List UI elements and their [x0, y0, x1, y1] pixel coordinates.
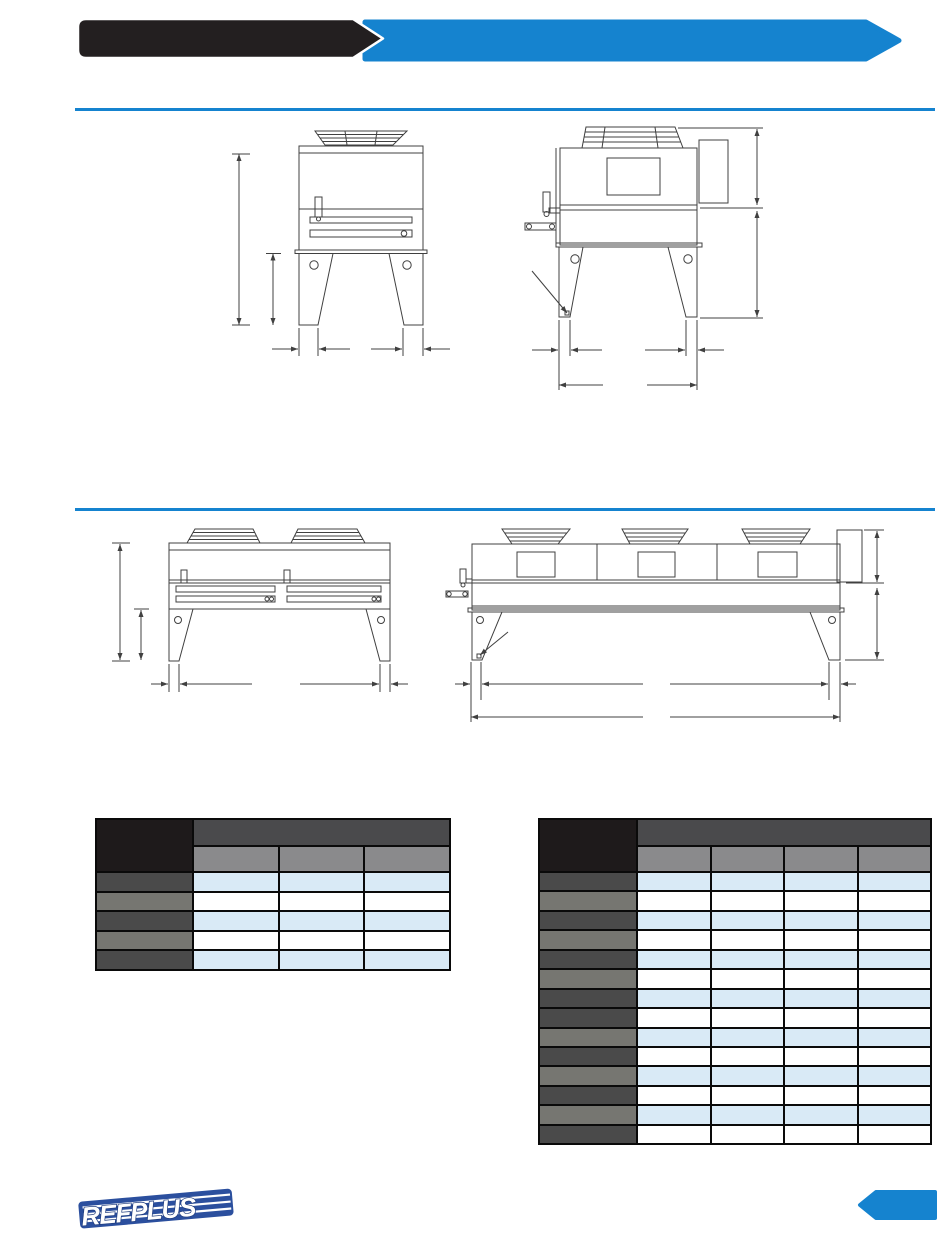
unit-body: [169, 543, 390, 609]
section-rule-middle: [75, 508, 935, 511]
table-corner-header: [539, 819, 637, 872]
data-cell: [364, 872, 450, 892]
header-black-banner: [78, 19, 383, 58]
table-row: [96, 950, 450, 970]
row-header-cell: [539, 1105, 637, 1124]
data-cell: [279, 931, 365, 951]
table-row: [539, 1008, 931, 1027]
header-blue-banner: [365, 22, 899, 59]
data-cell: [711, 969, 785, 988]
data-cell: [711, 950, 785, 969]
data-cell: [193, 872, 279, 892]
row-header-cell: [539, 891, 637, 910]
data-cell: [637, 1047, 711, 1066]
table-row: [539, 1086, 931, 1105]
table-subheader-cell: [858, 846, 932, 872]
leader-arrow: [532, 271, 569, 315]
dimension-lines: [232, 154, 450, 356]
table-row: [96, 911, 450, 931]
data-cell: [279, 872, 365, 892]
table-row: [539, 1125, 931, 1144]
drawing-two-fan-front-view: [105, 520, 425, 705]
drawing-single-fan-front-view: [225, 118, 465, 366]
row-header-cell: [539, 1066, 637, 1085]
fan-guard: [315, 131, 407, 145]
row-header-cell: [539, 1047, 637, 1066]
row-header-cell: [539, 1086, 637, 1105]
unit-body: [295, 146, 427, 254]
data-cell: [858, 950, 932, 969]
footer-tag-shape: [860, 1192, 935, 1218]
table-subheader-cell: [279, 846, 365, 872]
table-row: [96, 872, 450, 892]
table-row: [539, 969, 931, 988]
refplus-logo: REFPLUS: [75, 1183, 239, 1235]
data-cell: [858, 989, 932, 1008]
drawing-three-fan-side-view: [440, 520, 890, 725]
row-header-cell: [539, 1028, 637, 1047]
data-cell: [711, 1105, 785, 1124]
table-row: [539, 891, 931, 910]
table-subheader-cell: [364, 846, 450, 872]
data-cell: [364, 950, 450, 970]
data-cell: [711, 989, 785, 1008]
data-cell: [637, 989, 711, 1008]
table-row: [539, 1047, 931, 1066]
table-row: [539, 1105, 931, 1124]
table-row: [539, 989, 931, 1008]
data-cell: [711, 872, 785, 891]
electrical-box: [699, 140, 728, 203]
data-cell: [784, 1008, 858, 1027]
data-cell: [637, 1028, 711, 1047]
data-cell: [858, 1066, 932, 1085]
data-cell: [858, 1105, 932, 1124]
row-header-cell: [539, 1008, 637, 1027]
section-rule-top: [75, 108, 935, 111]
mounting-legs: [559, 247, 697, 317]
data-cell: [364, 892, 450, 912]
table-subheader-cell: [711, 846, 785, 872]
data-cell: [858, 1086, 932, 1105]
data-cell: [364, 911, 450, 931]
data-cell: [784, 989, 858, 1008]
table-row: [96, 892, 450, 912]
refrigerant-connections: [446, 569, 472, 597]
table-row: [539, 1028, 931, 1047]
table-subheader-cell: [193, 846, 279, 872]
data-cell: [784, 950, 858, 969]
table-row: [96, 931, 450, 951]
data-cell: [711, 1086, 785, 1105]
data-cell: [193, 892, 279, 912]
mounting-legs: [472, 612, 840, 660]
data-cell: [711, 1125, 785, 1144]
table-group-header: [637, 819, 931, 846]
data-cell: [637, 891, 711, 910]
fan-guard: [582, 127, 683, 148]
logo-text: REFPLUS: [80, 1192, 198, 1232]
data-cell: [858, 891, 932, 910]
data-cell: [858, 930, 932, 949]
data-cell: [784, 1105, 858, 1124]
row-header-cell: [539, 911, 637, 930]
footer-page-tag: [855, 1189, 940, 1221]
data-cell: [637, 872, 711, 891]
data-cell: [711, 1008, 785, 1027]
data-cell: [858, 872, 932, 891]
data-cell: [858, 1125, 932, 1144]
table-corner-header: [96, 819, 193, 872]
data-cell: [364, 931, 450, 951]
data-cell: [637, 911, 711, 930]
data-cell: [711, 930, 785, 949]
fan-guards: [187, 529, 365, 543]
data-cell: [784, 872, 858, 891]
dimensions-table-small: [95, 818, 451, 971]
data-cell: [637, 1125, 711, 1144]
data-cell: [711, 911, 785, 930]
data-cell: [637, 1008, 711, 1027]
dimension-lines: [455, 530, 884, 722]
row-header-cell: [539, 1125, 637, 1144]
table-row: [539, 911, 931, 930]
drawing-single-fan-side-view: [515, 115, 785, 400]
data-cell: [784, 891, 858, 910]
table-row: [539, 950, 931, 969]
data-cell: [637, 1105, 711, 1124]
data-cell: [858, 969, 932, 988]
table-row: [539, 930, 931, 949]
header-banner: [0, 0, 950, 70]
row-header-cell: [96, 931, 193, 951]
data-cell: [637, 1066, 711, 1085]
table-subheader-cell: [784, 846, 858, 872]
table-group-header: [193, 819, 450, 846]
row-header-cell: [96, 911, 193, 931]
row-header-cell: [96, 872, 193, 892]
data-cell: [637, 950, 711, 969]
data-cell: [784, 1086, 858, 1105]
data-cell: [858, 1028, 932, 1047]
data-cell: [784, 1047, 858, 1066]
row-header-cell: [96, 950, 193, 970]
row-header-cell: [96, 892, 193, 912]
data-cell: [279, 911, 365, 931]
data-cell: [193, 950, 279, 970]
data-cell: [193, 931, 279, 951]
data-cell: [711, 1066, 785, 1085]
unit-body: [468, 544, 844, 612]
row-header-cell: [539, 872, 637, 891]
data-cell: [193, 911, 279, 931]
dimensions-table-large: [538, 818, 932, 1145]
row-header-cell: [539, 950, 637, 969]
data-cell: [858, 1047, 932, 1066]
fan-guards: [502, 529, 810, 544]
mounting-legs: [169, 609, 390, 661]
table-row: [539, 1066, 931, 1085]
table-row: [539, 872, 931, 891]
data-cell: [637, 930, 711, 949]
table-subheader-cell: [637, 846, 711, 872]
table-header-row: [539, 819, 931, 846]
data-cell: [637, 1086, 711, 1105]
data-cell: [711, 891, 785, 910]
document-page: REFPLUS: [0, 0, 950, 1237]
data-cell: [784, 1066, 858, 1085]
data-cell: [279, 892, 365, 912]
data-cell: [711, 1047, 785, 1066]
electrical-box: [837, 530, 862, 582]
data-cell: [711, 1028, 785, 1047]
row-header-cell: [539, 969, 637, 988]
data-cell: [784, 1125, 858, 1144]
data-cell: [858, 1008, 932, 1027]
table-header-row: [96, 819, 450, 846]
data-cell: [784, 969, 858, 988]
mounting-legs: [299, 254, 423, 326]
data-cell: [858, 911, 932, 930]
data-cell: [637, 969, 711, 988]
row-header-cell: [539, 989, 637, 1008]
refrigerant-connections: [525, 192, 560, 230]
data-cell: [784, 911, 858, 930]
data-cell: [784, 1028, 858, 1047]
data-cell: [784, 930, 858, 949]
unit-body: [556, 148, 702, 247]
row-header-cell: [539, 930, 637, 949]
dimension-lines: [112, 543, 408, 692]
data-cell: [279, 950, 365, 970]
